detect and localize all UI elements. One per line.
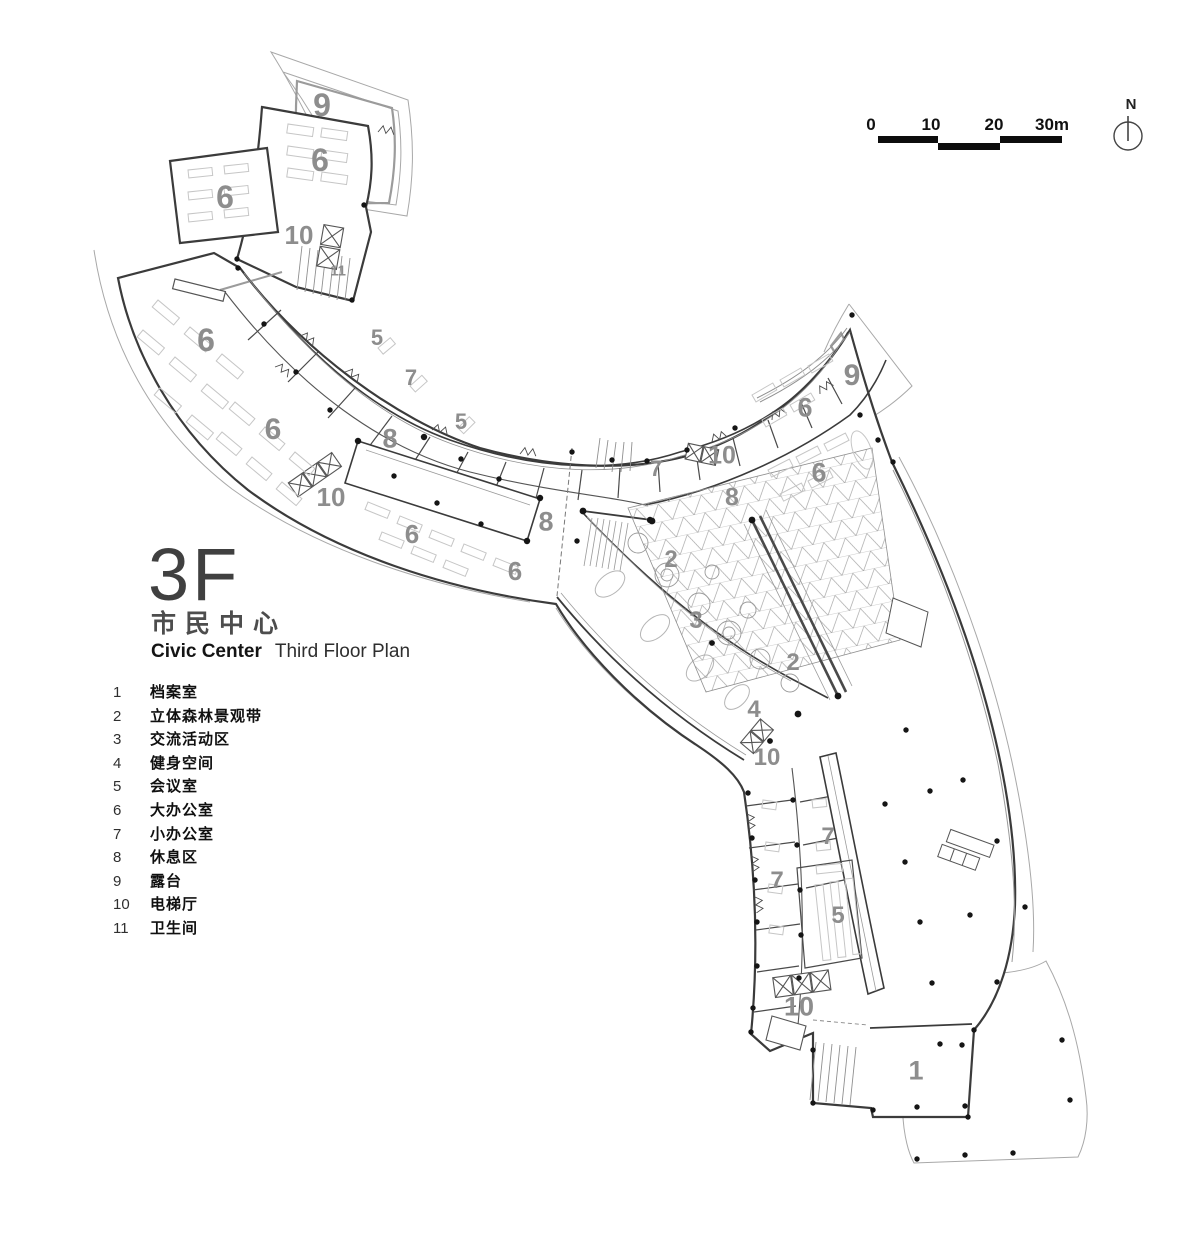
room-number-label: 10	[317, 484, 346, 510]
legend-number: 1	[113, 684, 150, 701]
legend-number: 8	[113, 849, 150, 866]
room-number-label: 2	[786, 651, 799, 675]
room-number-label: 10	[754, 746, 781, 770]
room-number-label: 8	[382, 426, 397, 453]
legend-number: 5	[113, 778, 150, 795]
room-number-label: 6	[311, 144, 329, 176]
legend-label: 小办公室	[150, 823, 214, 844]
legend-number: 3	[113, 731, 150, 748]
scale-tick-label: 20	[985, 115, 1004, 135]
legend-number: 2	[113, 708, 150, 725]
room-number-label: 10	[285, 222, 314, 248]
north-arrow: N	[1106, 96, 1156, 158]
plan-title: Civic CenterThird Floor Plan	[151, 641, 410, 664]
legend-label: 会议室	[150, 775, 198, 796]
room-number-label: 6	[811, 460, 826, 487]
legend-item: 4健身空间	[113, 752, 262, 776]
room-number-label: 6	[216, 181, 234, 213]
building-name-cn: 市民中心	[151, 612, 287, 637]
room-number-label: 6	[265, 415, 282, 445]
building-name-en: Civic Center	[151, 641, 262, 662]
legend-number: 6	[113, 802, 150, 819]
legend-item: 8休息区	[113, 846, 262, 870]
legend-number: 4	[113, 755, 150, 772]
room-legend: 1档案室2立体森林景观带3交流活动区4健身空间5会议室6大办公室7小办公室8休息…	[113, 681, 262, 941]
legend-label: 电梯厅	[150, 893, 198, 914]
room-number-label: 1	[908, 1058, 923, 1085]
legend-item: 6大办公室	[113, 799, 262, 823]
scale-tick-label: 0	[866, 115, 875, 135]
floor-plan-page: 3F 市民中心 Civic CenterThird Floor Plan 1档案…	[0, 0, 1190, 1240]
room-number-label: 5	[831, 904, 844, 928]
legend-item: 1档案室	[113, 681, 262, 705]
legend-item: 3交流活动区	[113, 728, 262, 752]
floor-number: 3F	[148, 538, 240, 612]
legend-label: 立体森林景观带	[150, 705, 262, 726]
legend-label: 档案室	[150, 681, 198, 702]
room-number-label: 11	[330, 264, 346, 279]
room-number-label: 6	[405, 521, 419, 547]
scale-bar-segment	[1000, 136, 1062, 143]
terraces	[296, 81, 872, 415]
room-number-label: 9	[313, 89, 331, 121]
room-number-label: 10	[708, 444, 736, 469]
room-number-label: 8	[538, 509, 553, 536]
legend-item: 5会议室	[113, 775, 262, 799]
legend-item: 9露台	[113, 870, 262, 894]
legend-label: 休息区	[150, 846, 198, 867]
scale-bar-segment	[878, 136, 938, 143]
room-number-label: 8	[725, 486, 739, 511]
legend-number: 7	[113, 826, 150, 843]
room-number-label: 9	[844, 361, 861, 391]
legend-number: 11	[113, 920, 150, 937]
legend-item: 11卫生间	[113, 917, 262, 941]
legend-number: 9	[113, 873, 150, 890]
room-number-label: 7	[405, 367, 417, 389]
room-number-label: 3	[689, 609, 702, 633]
legend-item: 2立体森林景观带	[113, 705, 262, 729]
room-number-label: 5	[371, 327, 383, 349]
legend-item: 10电梯厅	[113, 893, 262, 917]
room-number-label: 10	[784, 994, 814, 1021]
room-number-label: 6	[508, 558, 522, 584]
scale-bar-segment	[938, 143, 1000, 150]
legend-label: 大办公室	[150, 799, 214, 820]
legend-label: 露台	[150, 870, 182, 891]
room-number-label: 7	[650, 458, 662, 480]
room-number-label: 7	[770, 869, 783, 893]
legend-label: 交流活动区	[150, 728, 230, 749]
room-number-label: 6	[197, 324, 215, 356]
room-number-label: 7	[821, 825, 834, 849]
room-number-label: 2	[664, 548, 677, 572]
north-label: N	[1126, 96, 1137, 113]
legend-item: 7小办公室	[113, 823, 262, 847]
room-number-label: 5	[455, 411, 467, 433]
legend-label: 健身空间	[150, 752, 214, 773]
room-number-label: 4	[747, 698, 760, 722]
scale-tick-label: 30m	[1035, 115, 1069, 135]
legend-label: 卫生间	[150, 917, 198, 938]
plan-title-en: Third Floor Plan	[275, 641, 410, 662]
room-number-label: 6	[797, 395, 812, 422]
scale-tick-label: 10	[922, 115, 941, 135]
legend-number: 10	[113, 896, 150, 913]
